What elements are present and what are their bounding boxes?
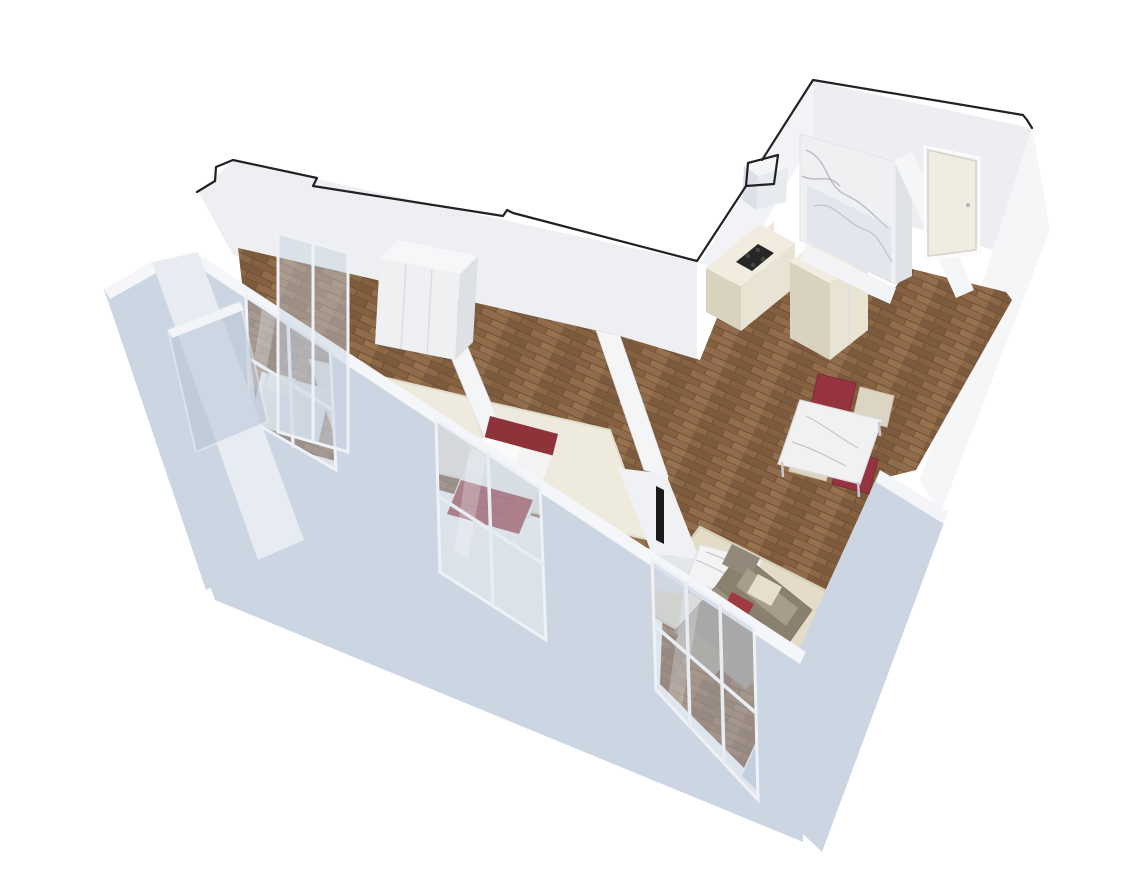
tv-panel [656, 486, 664, 544]
entry-door [928, 150, 976, 256]
burner-2 [756, 248, 761, 253]
floor-plan-stage [0, 0, 1140, 894]
apartment-3d-floor-plan [0, 0, 1140, 894]
wardrobe-front [375, 258, 460, 360]
burner-1 [746, 254, 751, 259]
burner-3 [761, 257, 766, 262]
entry [925, 147, 979, 259]
door-handle [966, 203, 970, 207]
burner-4 [751, 263, 756, 268]
